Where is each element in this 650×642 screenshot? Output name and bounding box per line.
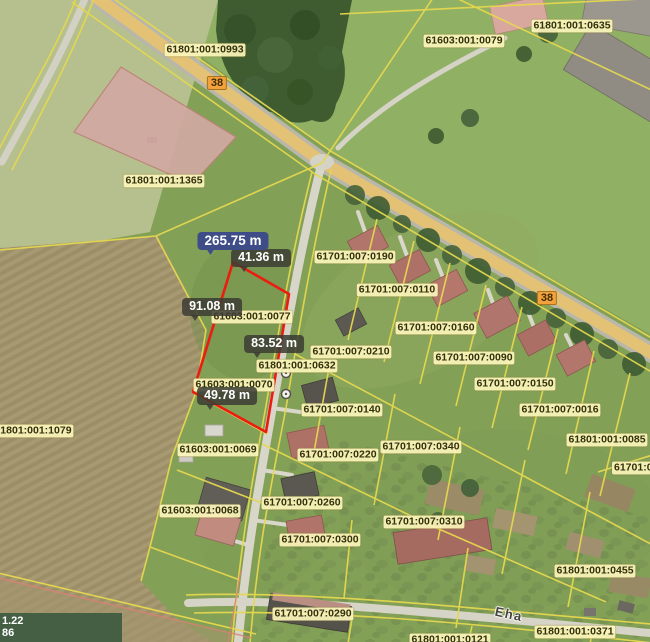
coordinate-line-y: 86 xyxy=(2,627,112,639)
parcel-label: 61701:007:0220 xyxy=(297,449,378,462)
parcel-label: 61801:001:0085 xyxy=(566,434,647,447)
measurement-badge: 49.78 m xyxy=(197,387,257,405)
measurement-badge: 91.08 m xyxy=(182,298,242,316)
parcel-label: 61701:007:0260 xyxy=(261,497,342,510)
parcel-label: 61801:001:0371 xyxy=(534,626,615,639)
parcel-label: 61801:001:1079 xyxy=(0,425,74,438)
parcel-label: 61801:001:0993 xyxy=(164,44,245,57)
parcel-label: 61701:007:0090 xyxy=(433,352,514,365)
parcel-label: 61801:001:0121 xyxy=(409,634,490,642)
road-number-badge: 38 xyxy=(537,291,557,305)
parcel-label: 61603:001:0068 xyxy=(159,505,240,518)
street-name-label: Eha xyxy=(494,604,525,625)
measurement-badge: 83.52 m xyxy=(244,335,304,353)
parcel-label: 61701:007:0016 xyxy=(519,404,600,417)
parcel-label: 61801:001:1365 xyxy=(123,175,204,188)
parcel-label: 61701:007:0160 xyxy=(395,322,476,335)
parcel-label: 61801:001:0632 xyxy=(256,360,337,373)
parcel-label: 61701:007:0300 xyxy=(279,534,360,547)
parcel-label: 61701:007:0210 xyxy=(310,346,391,359)
parcel-label: 61801:001:0635 xyxy=(531,20,612,33)
road-number-badge: 38 xyxy=(207,76,227,90)
parcel-label: 61701:007:0190 xyxy=(314,251,395,264)
parcel-label: 61801:001:0455 xyxy=(554,565,635,578)
measurement-badge: 41.36 m xyxy=(231,249,291,267)
total-measurement-badge: 265.75 m xyxy=(197,232,268,250)
cadastral-map-viewport[interactable]: 61801:001:099361603:001:007961801:001:06… xyxy=(0,0,650,642)
coordinate-line-x: 1.22 xyxy=(2,615,112,627)
parcel-label: 61701:007:0290 xyxy=(272,608,353,621)
parcel-label: 61701:007:0110 xyxy=(357,284,438,297)
coordinate-readout: 1.22 86 xyxy=(0,613,122,642)
parcel-label: 61701:007:0340 xyxy=(380,441,461,454)
parcel-label: 61701:007:0 xyxy=(612,462,650,475)
parcel-label: 61603:001:0079 xyxy=(423,35,504,48)
parcel-label: 61701:007:0140 xyxy=(301,404,382,417)
parcel-label: 61603:001:0069 xyxy=(177,444,258,457)
map-label-overlay: 61801:001:099361603:001:007961801:001:06… xyxy=(0,0,650,642)
parcel-label: 61701:007:0310 xyxy=(383,516,464,529)
parcel-label: 61701:007:0150 xyxy=(474,378,555,391)
